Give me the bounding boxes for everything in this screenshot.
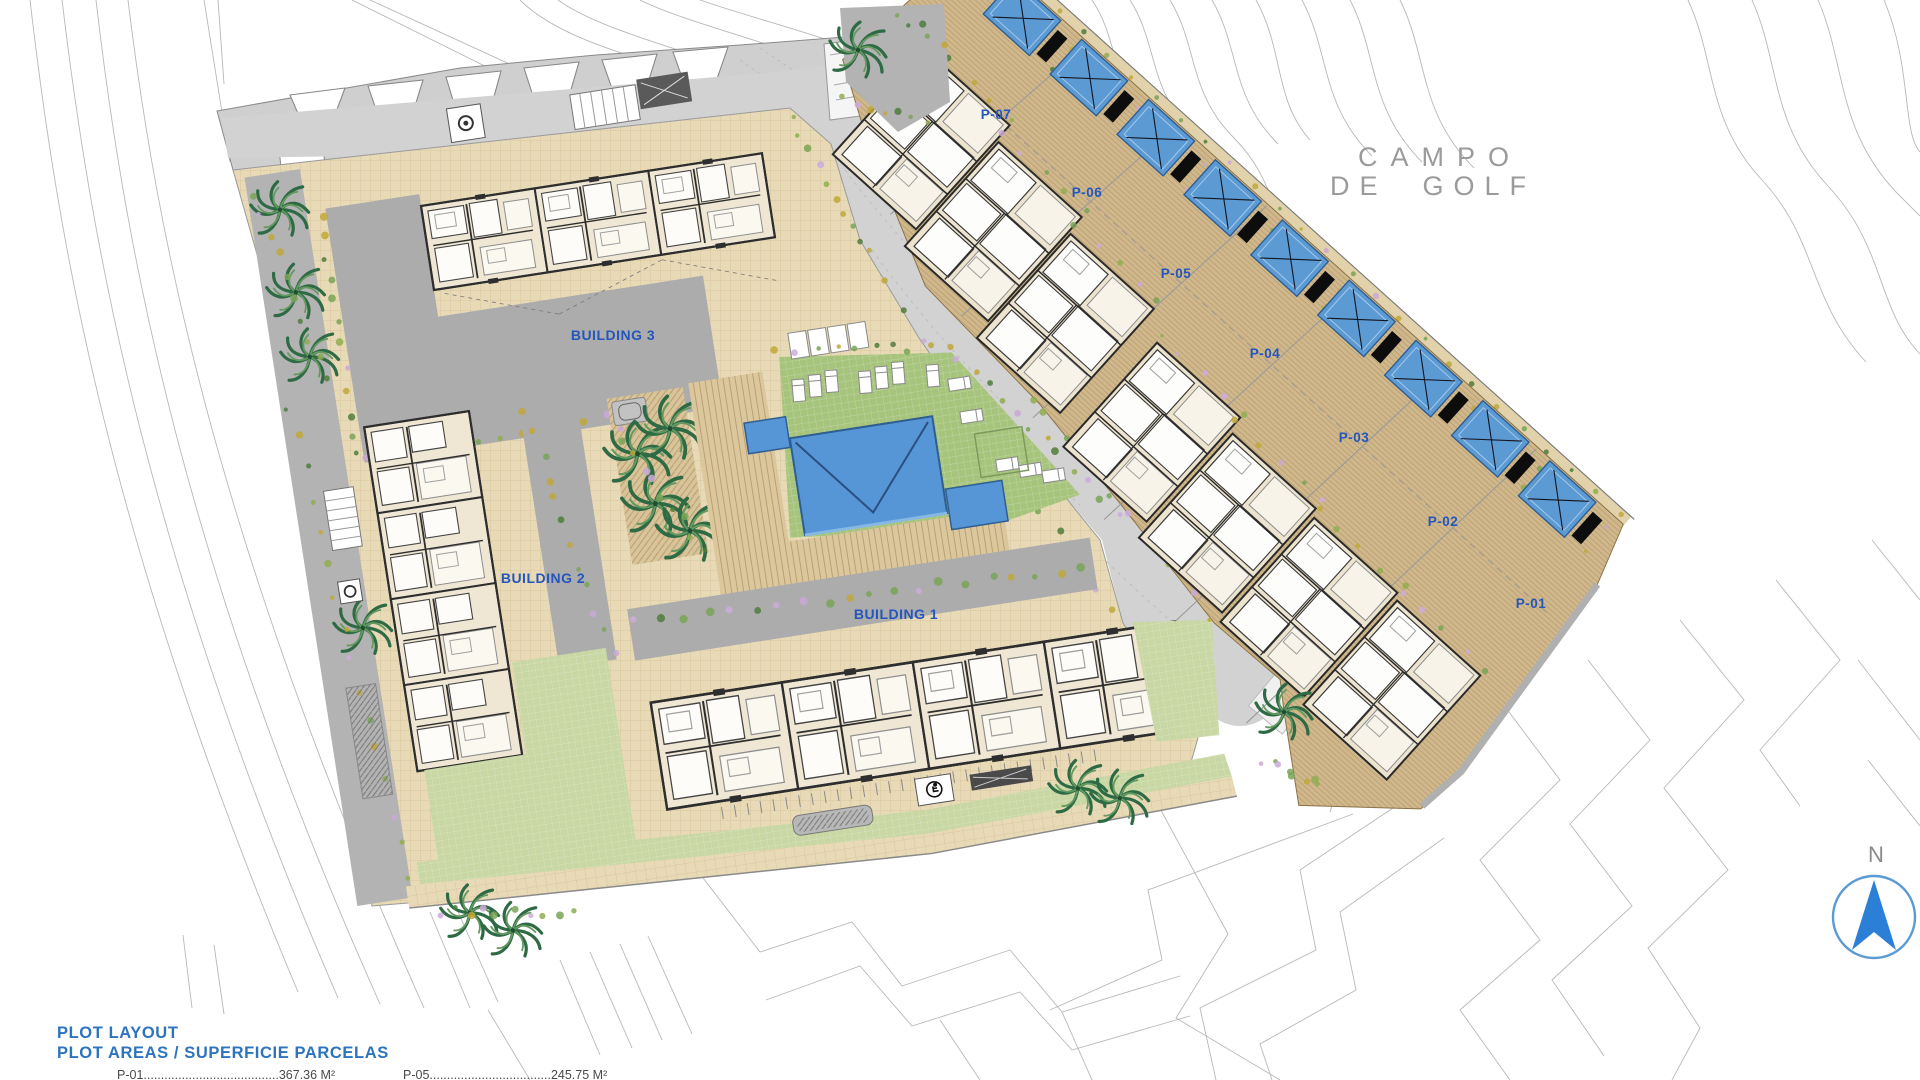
svg-text:P-02: P-02 <box>1428 514 1459 529</box>
svg-text:BUILDING 1: BUILDING 1 <box>854 606 938 622</box>
svg-text:CAMPO: CAMPO <box>1358 142 1522 172</box>
svg-text:BUILDING 2: BUILDING 2 <box>501 570 585 586</box>
svg-text:P-01..........................: P-01....................................… <box>117 1068 335 1080</box>
svg-text:PLOT AREAS / SUPERFICIE PARCEL: PLOT AREAS / SUPERFICIE PARCELAS <box>57 1044 389 1062</box>
svg-text:P-01: P-01 <box>1516 596 1547 611</box>
svg-text:BUILDING 3: BUILDING 3 <box>571 327 655 343</box>
svg-text:P-06: P-06 <box>1072 185 1103 200</box>
svg-text:P-05: P-05 <box>1161 266 1192 281</box>
svg-text:P-04: P-04 <box>1250 346 1281 361</box>
svg-text:P-03: P-03 <box>1339 430 1370 445</box>
svg-text:P-05..........................: P-05...................................2… <box>403 1068 607 1080</box>
svg-text:P-07: P-07 <box>981 107 1012 122</box>
svg-text:DE GOLF: DE GOLF <box>1330 171 1536 201</box>
svg-text:N: N <box>1868 842 1884 867</box>
svg-text:PLOT LAYOUT: PLOT LAYOUT <box>57 1024 179 1042</box>
